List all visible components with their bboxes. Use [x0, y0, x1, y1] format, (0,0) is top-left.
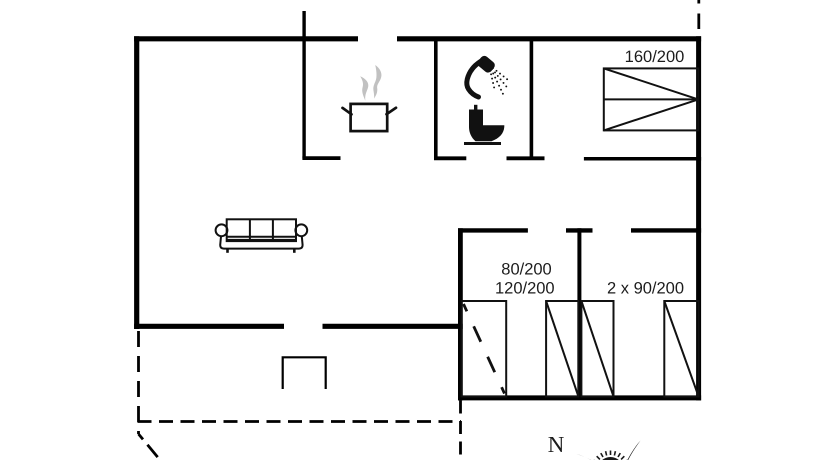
svg-text:80/200: 80/200: [501, 261, 551, 279]
svg-text:N: N: [548, 432, 565, 457]
svg-text:160/200: 160/200: [625, 48, 685, 66]
svg-text:2 x 90/200: 2 x 90/200: [607, 280, 684, 298]
svg-text:120/200: 120/200: [495, 280, 555, 298]
